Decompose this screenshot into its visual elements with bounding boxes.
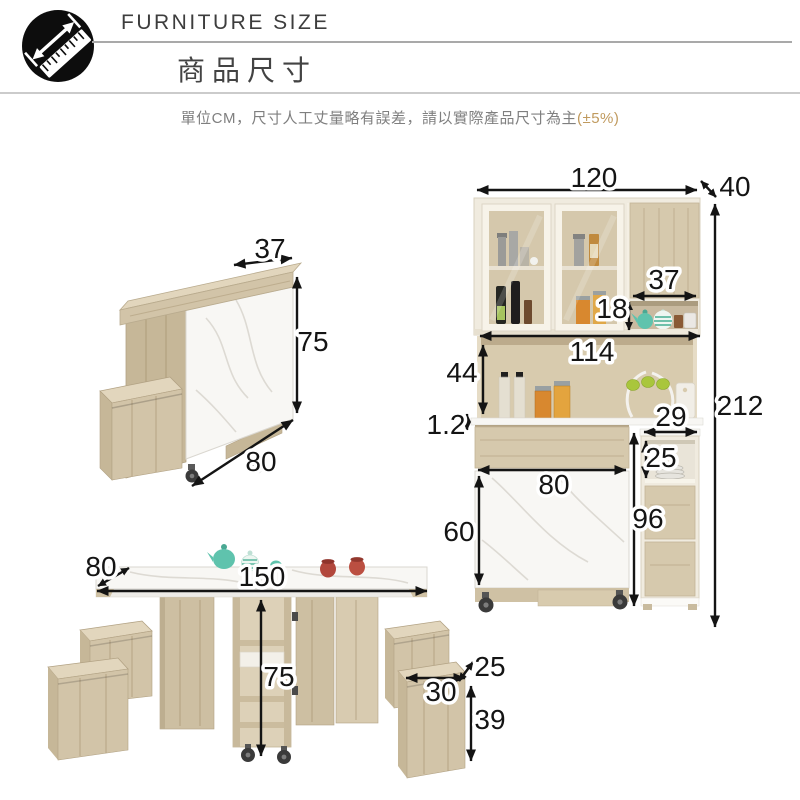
dim-label-cabinet-side-width: 29 [655, 401, 686, 432]
stool [48, 658, 128, 760]
folded-table-diagram: 37 75 80 [100, 233, 329, 486]
tucked-stool [100, 377, 182, 480]
dim-label-folded-depth: 37 [254, 233, 285, 264]
dim-label-cabinet-inner-width: 114 [570, 336, 615, 367]
dim-label-cabinet-total-height: 212 [717, 390, 764, 421]
dim-label-table-height: 75 [263, 661, 294, 692]
dim-label-folded-width: 80 [245, 446, 276, 477]
dim-label-cabinet-side-height: 96 [632, 503, 663, 534]
dim-label-stool-height: 39 [474, 704, 505, 735]
dim-label-table-depth: 80 [85, 551, 116, 582]
furniture-size-sheet: FURNITURE SIZE 商品尺寸 單位CM，尺寸人工丈量略有誤差，請以實際… [0, 0, 800, 800]
dim-label-cabinet-open-height: 44 [446, 357, 477, 388]
dim-label-cabinet-side-niche-height: 25 [645, 442, 676, 473]
dim-label-cabinet-door-height: 60 [443, 516, 474, 547]
dim-label-cabinet-niche-width: 37 [648, 264, 679, 295]
cabinet-lower-unit [475, 425, 629, 613]
cabinet-diagram: 120 40 212 37 18 114 44 1.2 29 25 [427, 162, 764, 627]
dimension-diagrams: 37 75 80 [0, 0, 800, 800]
dining-table-diagram: 80 150 75 25 30 39 [48, 544, 506, 778]
dim-label-stool-depth: 25 [474, 651, 505, 682]
dim-label-cabinet-depth: 40 [719, 171, 750, 202]
dim-label-folded-height: 75 [297, 326, 328, 357]
dim-label-table-length: 150 [239, 561, 286, 592]
dim-label-cabinet-niche-height: 18 [596, 293, 627, 324]
dim-label-cabinet-door-width: 80 [538, 469, 569, 500]
dim-label-cabinet-width: 120 [571, 162, 618, 193]
dim-label-cabinet-top-thickness: 1.2 [427, 409, 466, 440]
dim-label-stool-width: 30 [425, 676, 456, 707]
